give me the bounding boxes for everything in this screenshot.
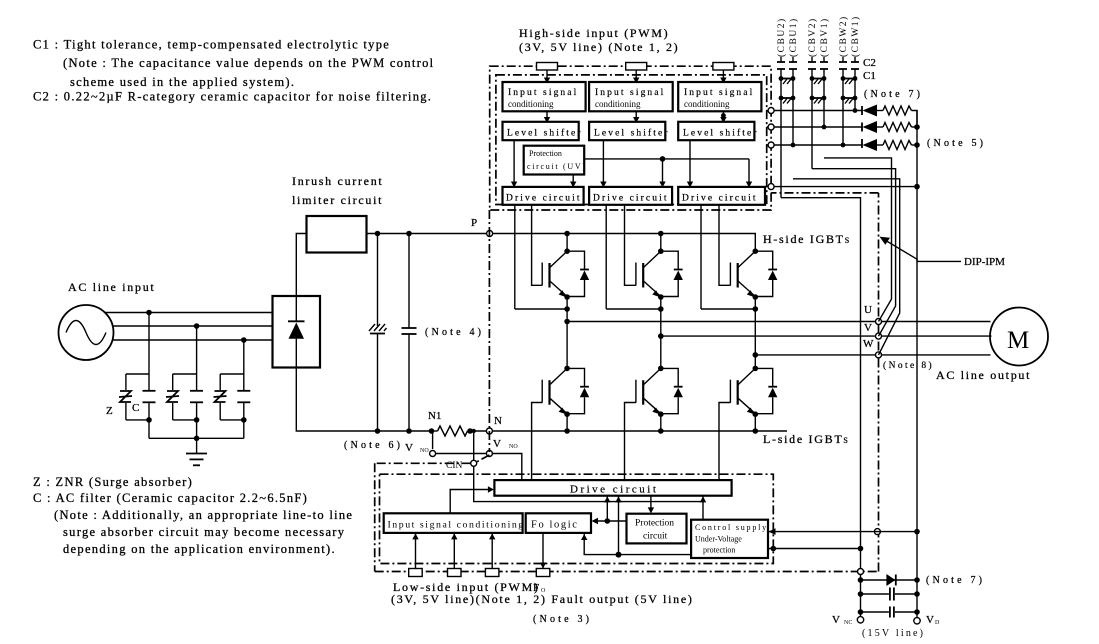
svg-text:circuit: circuit (643, 532, 668, 542)
svg-text:NO: NO (509, 444, 518, 450)
svg-text:AC line input: AC line input (68, 280, 155, 294)
svg-text:depending on the application e: depending on the application environment… (63, 542, 336, 556)
svg-text:M: M (1007, 327, 1029, 354)
svg-text:U: U (864, 304, 872, 316)
svg-text:(CBV1): (CBV1) (819, 17, 830, 57)
svg-text:Z: Z (106, 405, 113, 417)
svg-text:(Note 4): (Note 4) (425, 327, 484, 338)
svg-text:Inrush current: Inrush current (292, 174, 383, 188)
svg-text:protection: protection (703, 546, 735, 555)
svg-text:L-side IGBTS: L-side IGBTS (763, 432, 850, 446)
svg-text:V: V (832, 614, 840, 626)
svg-text:C : AC filter (Ceramic capacit: C : AC filter (Ceramic capacitor 2.2~6.5… (33, 491, 308, 505)
svg-text:(CBW2): (CBW2) (838, 15, 849, 57)
svg-text:Level shifter: Level shifter (594, 128, 670, 139)
svg-text:(Note 3): (Note 3) (533, 614, 592, 625)
svg-text:High-side input (PWM): High-side input (PWM) (519, 26, 669, 40)
svg-text:(Note 6): (Note 6) (344, 440, 403, 451)
svg-text:surge absorber circuit may bec: surge absorber circuit may become necess… (63, 525, 345, 539)
svg-text:DIP-IPM: DIP-IPM (964, 256, 1005, 268)
svg-text:C1 : Tight tolerance, temp-com: C1 : Tight tolerance, temp-compensated e… (33, 38, 390, 52)
svg-text:Under-Voltage: Under-Voltage (695, 535, 742, 544)
svg-text:conditioning: conditioning (508, 99, 554, 109)
svg-text:(3V, 5V line) (Note 1, 2): (3V, 5V line) (Note 1, 2) (519, 40, 679, 54)
svg-text:C2 : 0.22~2µF R-category ceram: C2 : 0.22~2µF R-category ceramic capacit… (33, 90, 432, 104)
svg-text:(15V line): (15V line) (862, 628, 925, 639)
svg-text:Fo logic: Fo logic (531, 520, 579, 531)
svg-text:NC: NC (844, 620, 852, 626)
svg-text:V: V (864, 322, 872, 334)
svg-text:(Note 7): (Note 7) (864, 89, 923, 100)
svg-text:Drive circuit: Drive circuit (593, 194, 669, 204)
svg-text:Protection: Protection (529, 149, 562, 158)
svg-text:AC line output: AC line output (936, 368, 1031, 382)
svg-text:circuit (UV): circuit (UV) (527, 162, 587, 171)
svg-text:C2: C2 (863, 57, 876, 69)
svg-text:Input signal: Input signal (684, 88, 754, 98)
svg-text:Input signal: Input signal (595, 88, 665, 98)
svg-text:(Note 8): (Note 8) (883, 360, 934, 371)
svg-text:Z : ZNR (Surge absorber): Z : ZNR (Surge absorber) (33, 475, 193, 489)
svg-text:W: W (863, 338, 874, 350)
svg-text:(Note : The capacitance value: (Note : The capacitance value depends on… (63, 56, 434, 70)
svg-text:(CBU1): (CBU1) (788, 17, 799, 57)
svg-text:Control supply: Control supply (695, 523, 768, 532)
svg-text:(CBV2): (CBV2) (807, 17, 818, 57)
svg-text:(CBU2): (CBU2) (776, 17, 787, 57)
svg-text:scheme used in the applied sys: scheme used in the applied system). (70, 75, 295, 89)
svg-text:conditioning: conditioning (595, 99, 641, 109)
svg-text:Input signal: Input signal (508, 88, 578, 98)
svg-text:H-side IGBTS: H-side IGBTS (763, 232, 851, 246)
svg-text:C1: C1 (863, 70, 876, 82)
svg-text:Drive circuit: Drive circuit (506, 194, 582, 204)
svg-text:Level shifter: Level shifter (507, 128, 583, 139)
svg-text:limiter circuit: limiter circuit (292, 193, 383, 207)
svg-text:Level shifter: Level shifter (683, 128, 759, 139)
svg-text:NO: NO (420, 448, 429, 454)
svg-text:Drive circuit: Drive circuit (570, 484, 658, 496)
svg-text:V: V (405, 442, 413, 454)
svg-text:(CBW1): (CBW1) (850, 15, 861, 57)
svg-text:Protection: Protection (635, 519, 674, 529)
svg-text:P: P (471, 217, 477, 229)
svg-text:Input signal conditioning: Input signal conditioning (388, 520, 525, 531)
svg-text:N1: N1 (428, 410, 441, 422)
svg-text:Drive circuit: Drive circuit (682, 194, 758, 204)
svg-text:N: N (494, 415, 502, 427)
svg-text:(Note 7): (Note 7) (926, 575, 985, 586)
svg-text:conditioning: conditioning (684, 99, 730, 109)
svg-text:V: V (926, 614, 934, 626)
svg-text:(3V, 5V line)(Note 1, 2) Fault: (3V, 5V line)(Note 1, 2) Fault output (5… (391, 592, 694, 606)
svg-text:(Note : Additionally, an appro: (Note : Additionally, an appropriate lin… (54, 508, 353, 522)
svg-text:(Note 5): (Note 5) (927, 138, 986, 149)
svg-text:D: D (935, 620, 940, 626)
svg-text:V: V (493, 438, 501, 450)
svg-text:C: C (132, 402, 139, 414)
